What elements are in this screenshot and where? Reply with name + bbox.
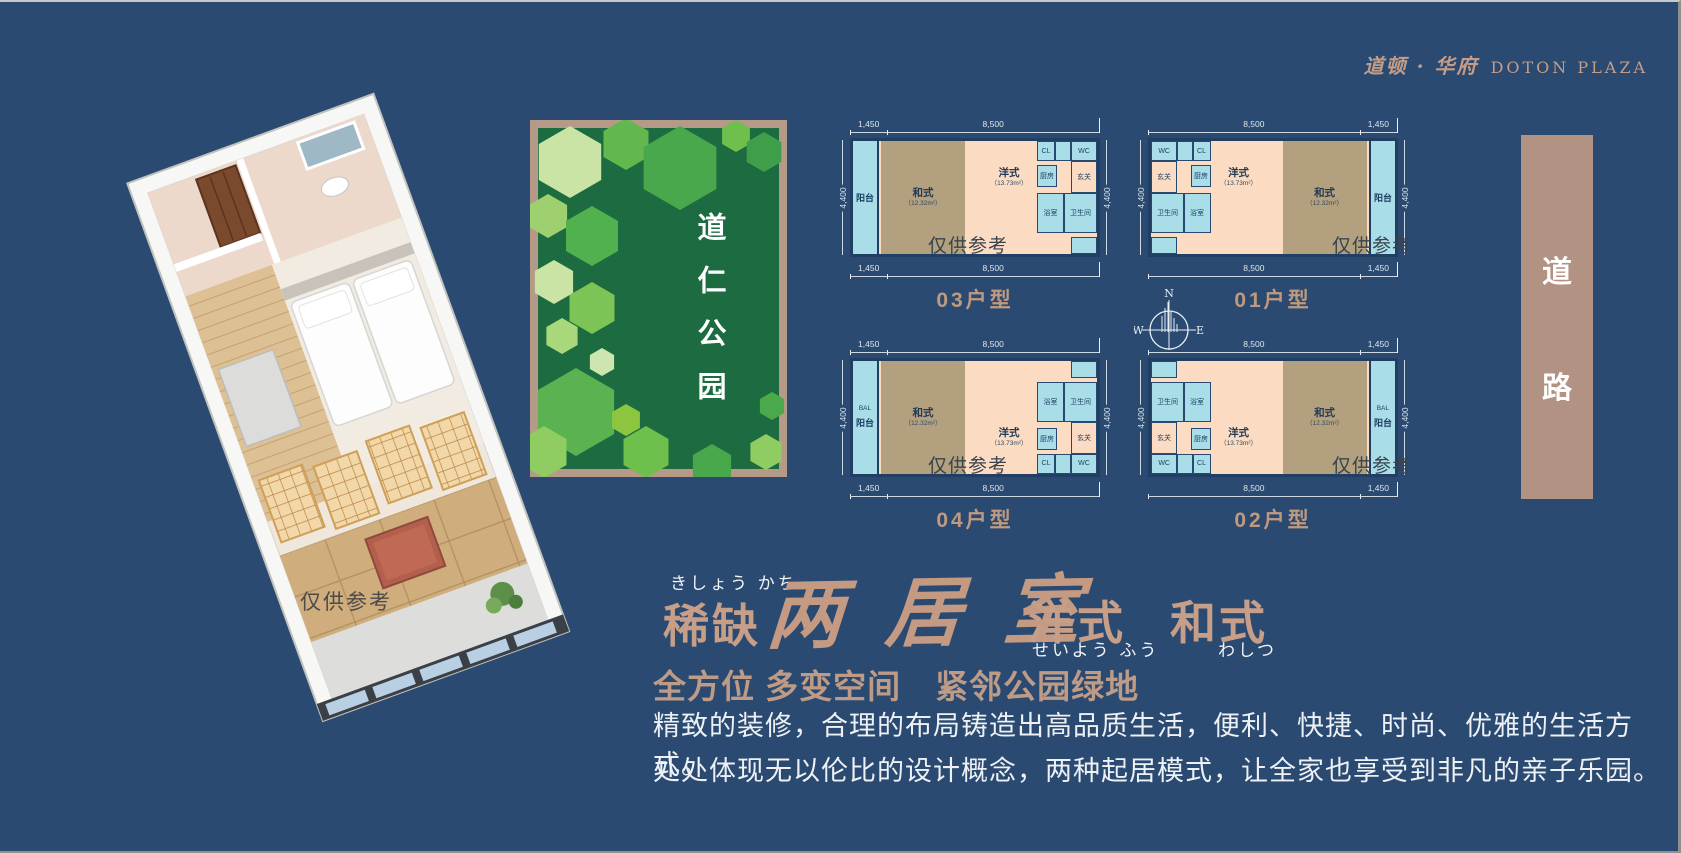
dim-value: 1,450: [850, 262, 887, 277]
render-watermark: 仅供参考: [300, 586, 392, 616]
furigana-heshi: わしつ: [1218, 636, 1277, 661]
compass-e: E: [1196, 324, 1204, 337]
bathroom: 浴室: [1037, 382, 1064, 422]
dim-value: 1,450: [1360, 118, 1398, 133]
wc: WC: [1071, 141, 1097, 161]
plan-watermark: 仅供参考: [928, 451, 1008, 478]
closet: CL: [1037, 454, 1055, 474]
floorplan-01: 8,500 1,450 4,400 阳台 和式（12.32m²） 洋式（13.7…: [1134, 118, 1412, 314]
furigana-yangshi: せいよう ふう: [1032, 636, 1159, 661]
dim-value: 1,450: [1360, 482, 1398, 497]
dims-top: 1,450 8,500: [850, 338, 1100, 353]
toilet-room: 卫生间: [1064, 382, 1097, 422]
bathroom: 浴室: [1037, 193, 1064, 233]
room-entry: 玄关: [1151, 161, 1177, 193]
park-map: 道仁公园: [530, 120, 787, 477]
dim-side-right: 4,400: [1100, 358, 1114, 477]
dims-bottom: 8,500 1,450: [1148, 482, 1398, 497]
storage: [1071, 361, 1097, 378]
dim-value: 1,450: [850, 482, 887, 497]
dim-value: 8,500: [1148, 482, 1360, 497]
dim-side-left: 4,400: [836, 138, 850, 257]
dim-value: 1,450: [850, 118, 887, 133]
brochure-page: 道顿 · 华府 DOTON PLAZA: [0, 0, 1681, 853]
dim-value: 8,500: [1148, 338, 1360, 353]
compass-w: W: [1134, 324, 1144, 337]
plan-name: 04户型: [836, 504, 1114, 534]
wc: WC: [1071, 454, 1097, 474]
kitchen: 厨房: [1037, 165, 1057, 187]
headline-xique: 稀缺: [663, 590, 761, 656]
room-balcony: 阳台: [853, 141, 879, 254]
dims-bottom: 8,500 1,450: [1148, 262, 1398, 277]
floorplan-03: 1,450 8,500 4,400 阳台 和式（12.32m²） 洋式（13.7…: [836, 118, 1114, 314]
room-yoshiki: 洋式（13.73m²）: [1199, 427, 1279, 448]
storage: [1151, 237, 1177, 254]
dim-value: 1,450: [1360, 262, 1398, 277]
kitchen: 厨房: [1191, 428, 1211, 450]
floorplan-02: 8,500 1,450 4,400 阳台BAL 和式（12.32m²） 洋式（1…: [1134, 338, 1412, 534]
dim-value: 8,500: [887, 262, 1100, 277]
apartment-3d-render: [15, 87, 595, 757]
brand-name-cn: 道顿 · 华府: [1364, 50, 1479, 79]
plan-name: 01户型: [1134, 284, 1412, 314]
dim-side-left: 4,400: [1134, 138, 1148, 257]
dim-value: 8,500: [887, 338, 1100, 353]
dim-side-left: 4,400: [1134, 358, 1148, 477]
floorplan-04: 1,450 8,500 4,400 阳台BAL 和式（12.32m²） 洋式（1…: [836, 338, 1114, 534]
toilet-room: 卫生间: [1151, 193, 1184, 233]
kitchen: 厨房: [1037, 428, 1057, 450]
brand-logo: 道顿 · 华府 DOTON PLAZA: [1364, 50, 1648, 79]
toilet-room: 卫生间: [1151, 382, 1184, 422]
washbasin: [1177, 454, 1193, 474]
washbasin: [1055, 141, 1071, 161]
dim-value: 8,500: [887, 482, 1100, 497]
dim-value: 1,450: [850, 338, 887, 353]
washbasin: [1055, 454, 1071, 474]
plan-watermark: 仅供参考: [928, 231, 1008, 258]
room-entry: 玄关: [1071, 422, 1097, 454]
body-line-2: 处处体现无以伦比的设计概念，两种起居模式，让全家也享受到非凡的亲子乐园。: [653, 749, 1661, 788]
room-entry: 玄关: [1071, 161, 1097, 193]
wc: WC: [1151, 454, 1177, 474]
toilet-room: 卫生间: [1064, 193, 1097, 233]
road-char-bottom: 路: [1542, 363, 1572, 407]
road-char-top: 道: [1542, 247, 1572, 291]
dims-top: 1,450 8,500: [850, 118, 1100, 133]
wc: WC: [1151, 141, 1177, 161]
plan-watermark: 仅供参考: [1332, 451, 1412, 478]
plan-watermark: 仅供参考: [1332, 231, 1412, 258]
dim-value: 8,500: [887, 118, 1100, 133]
closet: CL: [1193, 454, 1211, 474]
brand-name-en: DOTON PLAZA: [1491, 58, 1648, 77]
park-name: 道仁公园: [688, 212, 730, 424]
plan-name: 03户型: [836, 284, 1114, 314]
storage: [1151, 361, 1177, 378]
park-svg: [530, 120, 787, 477]
room-entry: 玄关: [1151, 422, 1177, 454]
dim-value: 1,450: [1360, 338, 1398, 353]
bathroom: 浴室: [1184, 382, 1211, 422]
dim-side-left: 4,400: [836, 358, 850, 477]
dims-top: 8,500 1,450: [1148, 118, 1398, 133]
bathroom: 浴室: [1184, 193, 1211, 233]
dims-bottom: 1,450 8,500: [850, 482, 1100, 497]
dim-value: 8,500: [1148, 262, 1360, 277]
room-yoshiki: 洋式（13.73m²）: [1199, 167, 1279, 188]
kitchen: 厨房: [1191, 165, 1211, 187]
apartment-3d-svg: [15, 87, 595, 757]
dim-value: 8,500: [1148, 118, 1360, 133]
dims-top: 8,500 1,450: [1148, 338, 1398, 353]
storage: [1071, 237, 1097, 254]
room-balcony: 阳台BAL: [853, 361, 879, 474]
dims-bottom: 1,450 8,500: [850, 262, 1100, 277]
closet: CL: [1193, 141, 1211, 161]
washbasin: [1177, 141, 1193, 161]
subtitle: 全方位 多变空间 紧邻公园绿地: [653, 660, 1139, 708]
closet: CL: [1037, 141, 1055, 161]
plan-name: 02户型: [1134, 504, 1412, 534]
road-strip: 道 路: [1521, 135, 1593, 499]
dim-side-right: 4,400: [1100, 138, 1114, 257]
